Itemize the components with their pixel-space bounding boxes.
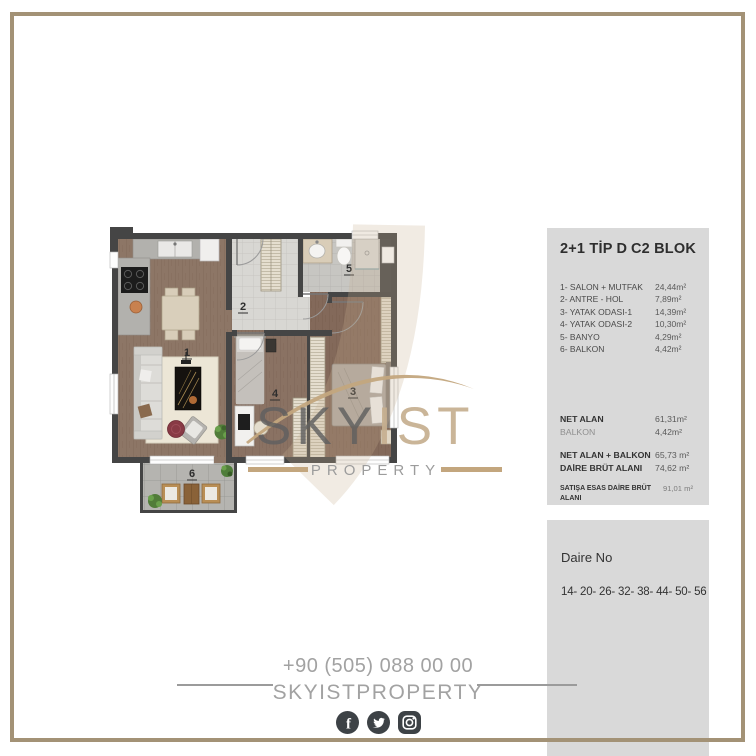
room-label-1: 1 <box>184 347 190 359</box>
room-label-6: 6 <box>189 468 195 480</box>
social-icons: f <box>0 711 756 734</box>
contact-divider-left <box>177 684 273 686</box>
floorplan: 1 2 3 4 5 6 SKYIST PROPERTY <box>95 215 545 530</box>
gross-area-summary: NET ALAN + BALKON65,73 m² DAİRE BRÜT ALA… <box>547 449 709 475</box>
room-row: 1- SALON + MUTFAK24,44m² <box>560 281 698 293</box>
room-row: 6- BALKON4,42m² <box>560 343 698 355</box>
watermark-logo-text: SKYIST <box>256 397 475 456</box>
daire-no-title: Daire No <box>547 520 709 565</box>
net-area-summary: NET ALAN61,31m² BALKON4,42m² <box>547 413 709 439</box>
summary-row: NET ALAN + BALKON65,73 m² <box>560 449 698 462</box>
unit-header: 2+1 TİP D C2 BLOK <box>547 228 709 257</box>
twitter-icon[interactable] <box>367 711 390 734</box>
summary-row: NET ALAN61,31m² <box>560 413 698 426</box>
summary-row: BALKON4,42m² <box>560 426 698 439</box>
phone-number: +90 (505) 088 00 00 <box>0 655 756 678</box>
daire-no-list: 14- 20- 26- 32- 38- 44- 50- 56 <box>547 565 709 598</box>
block-label: C2 BLOK <box>631 241 696 257</box>
sales-gross-area-row: SATIŞA ESAS DAİRE BRÜT ALANI91,01 m² <box>547 484 709 504</box>
unit-info-panel: 2+1 TİP D C2 BLOK 1- SALON + MUTFAK24,44… <box>547 228 709 505</box>
contact-footer: +90 (505) 088 00 00 SKYISTPROPERTY f <box>0 655 756 734</box>
room-row: 5- BANYO4,29m² <box>560 331 698 343</box>
room-row: 3- YATAK ODASI-114,39m² <box>560 306 698 318</box>
contact-divider-right <box>477 684 577 686</box>
unit-type-label: 2+1 TİP D <box>560 241 627 257</box>
room-row: 4- YATAK ODASI-210,30m² <box>560 318 698 330</box>
room-row: 2- ANTRE - HOL7,89m² <box>560 293 698 305</box>
facebook-icon[interactable]: f <box>336 711 359 734</box>
summary-row: DAİRE BRÜT ALANI74,62 m² <box>560 462 698 475</box>
living-furniture <box>134 347 230 445</box>
room-area-list: 1- SALON + MUTFAK24,44m² 2- ANTRE - HOL7… <box>547 281 709 355</box>
brand-name: SKYISTPROPERTY <box>0 681 756 705</box>
instagram-icon[interactable] <box>398 711 421 734</box>
room-label-2: 2 <box>240 301 246 313</box>
watermark-subtitle: PROPERTY <box>311 462 441 479</box>
